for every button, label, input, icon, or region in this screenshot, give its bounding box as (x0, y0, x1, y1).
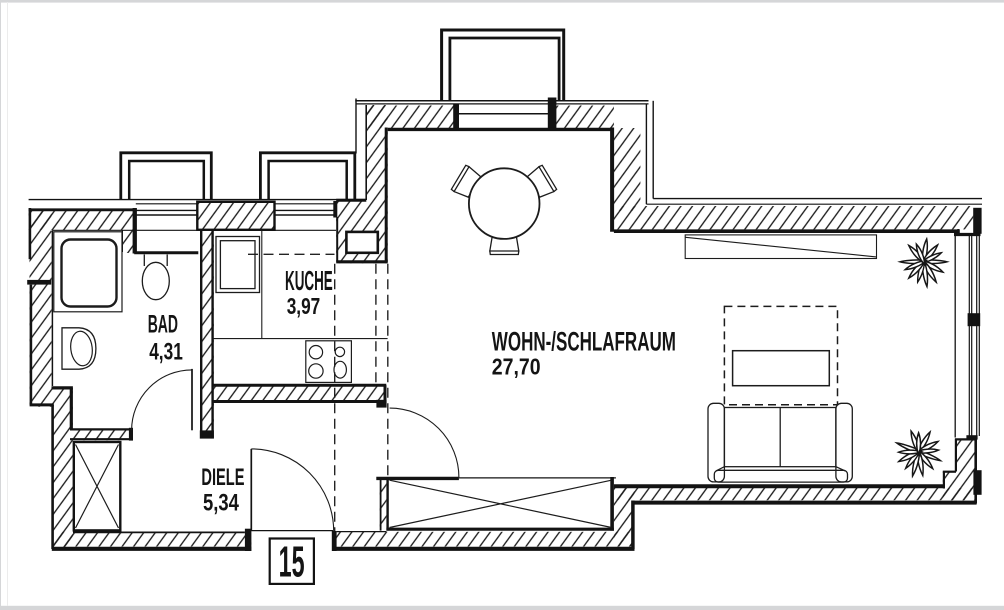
svg-text:4,31: 4,31 (149, 339, 183, 365)
svg-text:5,34: 5,34 (203, 489, 239, 516)
svg-text:3,97: 3,97 (287, 295, 321, 320)
svg-text:DIELE: DIELE (201, 465, 244, 492)
svg-text:15: 15 (279, 538, 305, 587)
svg-text:27,70: 27,70 (492, 353, 541, 380)
svg-text:KUCHE: KUCHE (285, 265, 333, 297)
svg-text:BAD: BAD (148, 312, 178, 339)
